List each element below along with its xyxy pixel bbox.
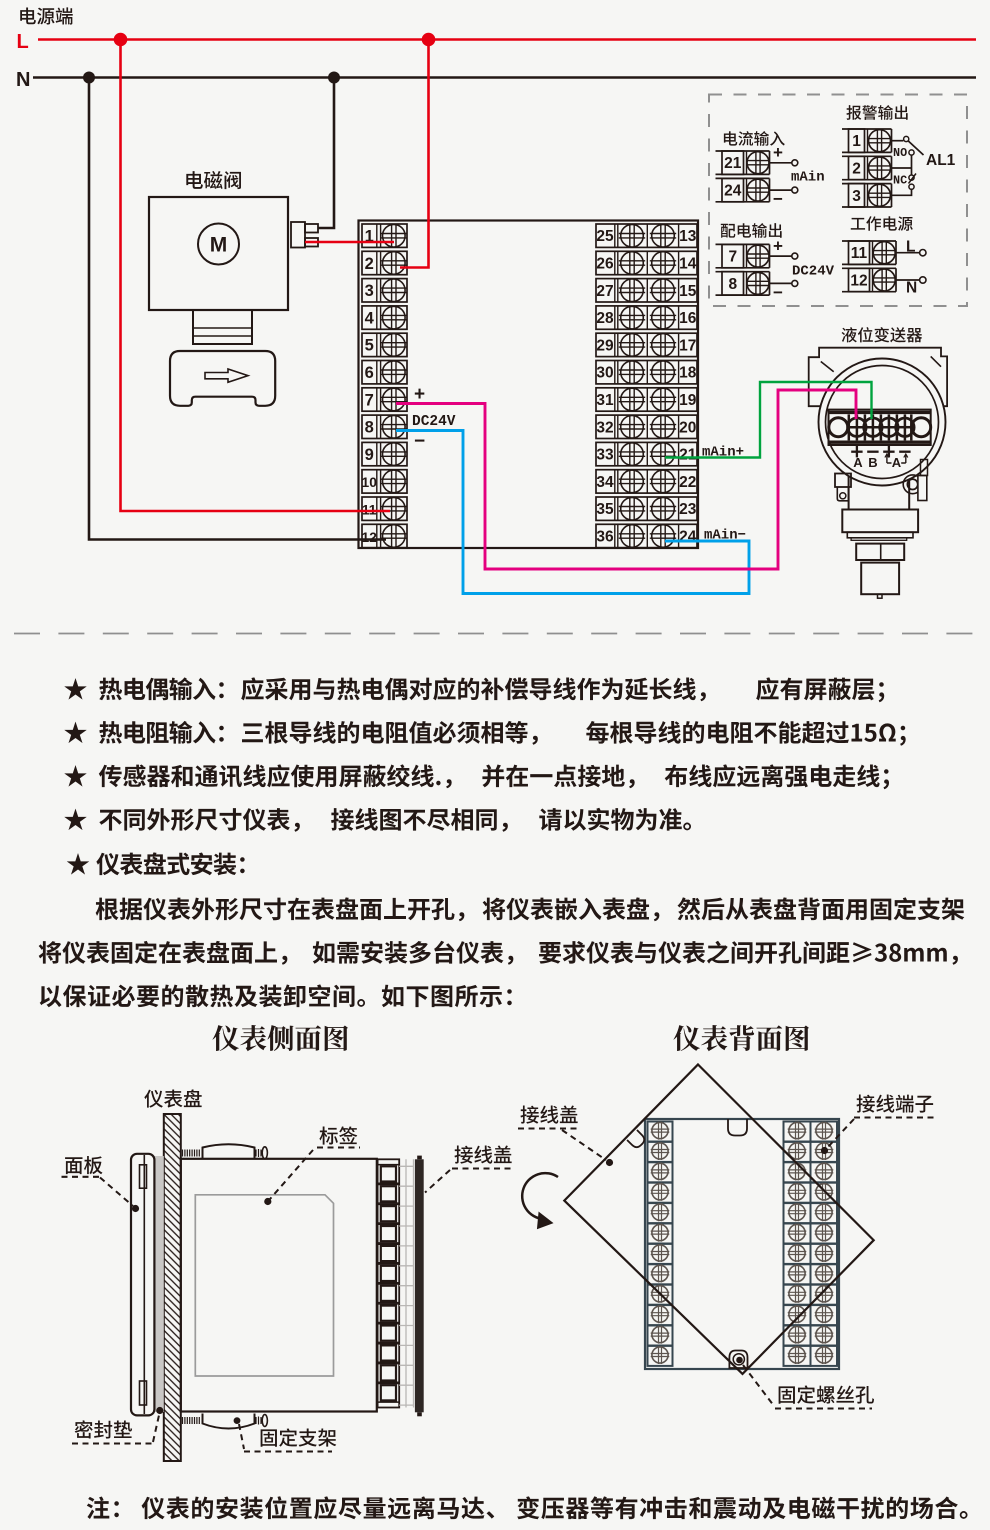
svg-text:24: 24 xyxy=(679,529,697,546)
svg-text:4: 4 xyxy=(365,309,375,327)
svg-text:30: 30 xyxy=(596,365,613,382)
svg-text:2: 2 xyxy=(365,255,374,273)
svg-text:2: 2 xyxy=(852,161,861,178)
svg-text:M: M xyxy=(210,234,228,257)
svg-text:15: 15 xyxy=(679,283,697,300)
svg-text:A: A xyxy=(853,455,863,470)
svg-text:12: 12 xyxy=(850,273,867,290)
svg-text:6: 6 xyxy=(365,364,374,382)
svg-text:16: 16 xyxy=(679,310,697,327)
svg-text:−: − xyxy=(773,190,783,209)
svg-text:3: 3 xyxy=(852,188,861,205)
svg-text:A: A xyxy=(892,455,902,470)
svg-text:11: 11 xyxy=(851,245,868,262)
svg-text:19: 19 xyxy=(679,392,697,409)
svg-text:7: 7 xyxy=(728,249,737,266)
svg-text:12: 12 xyxy=(362,530,378,545)
svg-text:+: + xyxy=(773,143,783,162)
svg-text:5: 5 xyxy=(365,337,374,355)
svg-text:33: 33 xyxy=(596,447,614,464)
svg-text:10: 10 xyxy=(362,475,378,490)
svg-text:31: 31 xyxy=(596,392,614,409)
svg-text:22: 22 xyxy=(679,474,696,491)
svg-text:+: + xyxy=(773,237,783,256)
svg-text:32: 32 xyxy=(596,419,613,436)
svg-text:24: 24 xyxy=(724,183,742,200)
svg-text:28: 28 xyxy=(596,310,614,327)
svg-text:NC: NC xyxy=(893,174,907,188)
svg-text:21: 21 xyxy=(724,155,742,172)
svg-text:B: B xyxy=(868,455,877,470)
svg-text:DC24V: DC24V xyxy=(412,414,456,430)
svg-text:N: N xyxy=(906,280,917,297)
svg-text:L: L xyxy=(17,31,29,53)
svg-text:3: 3 xyxy=(365,282,374,300)
svg-text:−: − xyxy=(414,431,425,452)
svg-text:34: 34 xyxy=(596,474,614,491)
svg-text:23: 23 xyxy=(679,501,697,518)
svg-text:NO: NO xyxy=(893,146,907,160)
svg-text:8: 8 xyxy=(728,276,737,293)
svg-text:AL1: AL1 xyxy=(926,152,956,169)
svg-text:18: 18 xyxy=(679,365,697,382)
svg-text:14: 14 xyxy=(679,256,697,273)
svg-text:29: 29 xyxy=(596,337,614,354)
svg-text:17: 17 xyxy=(679,337,696,354)
svg-text:35: 35 xyxy=(596,501,614,518)
svg-text:DC24V: DC24V xyxy=(792,264,835,280)
svg-text:+: + xyxy=(414,384,425,405)
svg-text:13: 13 xyxy=(679,228,697,245)
svg-text:20: 20 xyxy=(679,419,696,436)
svg-text:1: 1 xyxy=(852,133,861,150)
svg-text:26: 26 xyxy=(596,256,614,273)
svg-text:8: 8 xyxy=(365,419,374,437)
svg-text:mAin: mAin xyxy=(791,170,825,186)
svg-text:36: 36 xyxy=(596,529,614,546)
svg-text:N: N xyxy=(16,69,30,91)
svg-text:9: 9 xyxy=(365,446,374,464)
svg-text:21: 21 xyxy=(679,447,697,464)
svg-text:27: 27 xyxy=(596,283,613,300)
svg-text:7: 7 xyxy=(365,391,374,409)
svg-text:−: − xyxy=(773,283,783,302)
svg-text:25: 25 xyxy=(596,228,614,245)
